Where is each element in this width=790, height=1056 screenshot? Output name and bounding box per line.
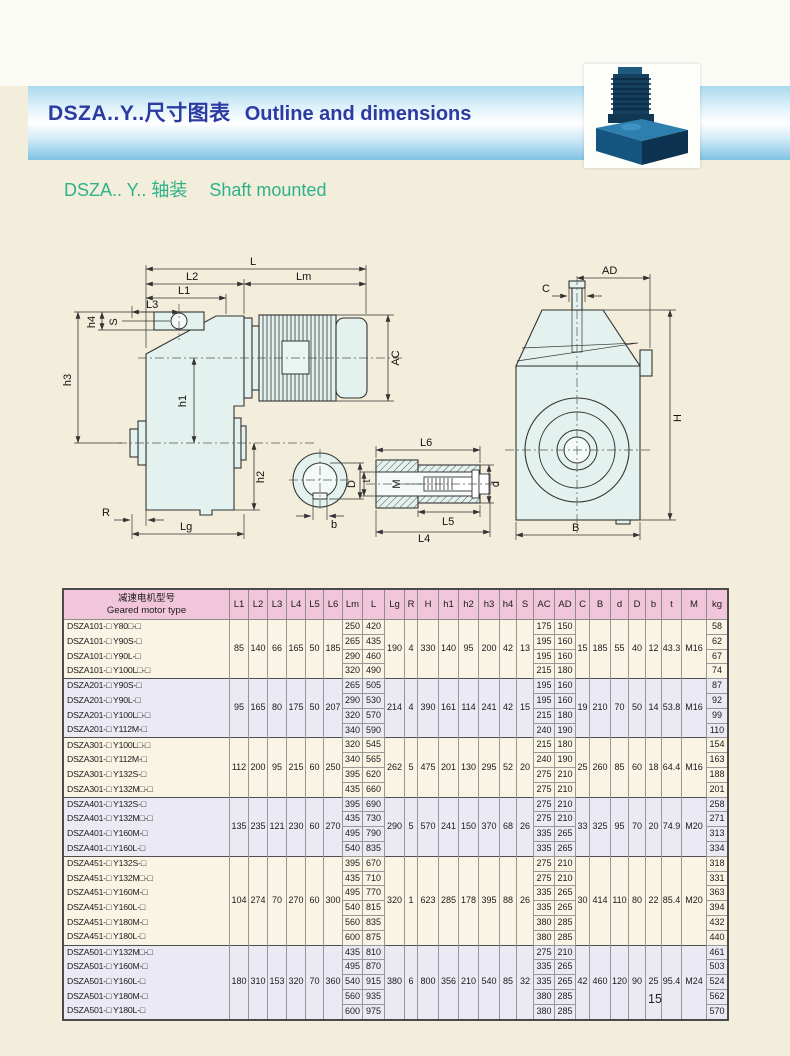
cell-AC: 380 — [534, 1004, 555, 1019]
cell-L2: 310 — [249, 945, 268, 1019]
cell-model: DSZA501-□ Y180M-□ — [63, 989, 230, 1004]
cell-AC: 335 — [534, 901, 555, 916]
cell-L5: 60 — [306, 738, 324, 797]
cell-AD: 210 — [555, 945, 576, 960]
header-col-kg: kg — [707, 589, 729, 620]
cell-AC: 215 — [534, 738, 555, 753]
dim-B: B — [572, 522, 579, 534]
cell-Lm: 495 — [343, 886, 363, 901]
header-col-B: B — [590, 589, 611, 620]
cell-kg: 318 — [707, 856, 729, 871]
cell-h1: 201 — [439, 738, 459, 797]
cell-H: 390 — [418, 679, 439, 738]
cell-L: 490 — [363, 664, 385, 679]
cell-M: M16 — [682, 679, 707, 738]
catalog-page: { "page": { "page_number": "15" }, "head… — [0, 0, 790, 1056]
cell-model: DSZA501-□ Y160M-□ — [63, 960, 230, 975]
cell-AC: 275 — [534, 782, 555, 797]
dim-h2: h2 — [255, 471, 267, 483]
side-view: L L2 Lm L1 L3 h3 h4 S h1 h2 AC R Lg — [62, 256, 403, 539]
cell-L1: 95 — [230, 679, 249, 738]
header-col-h4: h4 — [500, 589, 517, 620]
cell-h3: 540 — [479, 945, 500, 1019]
cell-h4: 68 — [500, 797, 517, 856]
cell-R: 1 — [405, 856, 418, 945]
header-col-L5: L5 — [306, 589, 324, 620]
cell-Lm: 435 — [343, 945, 363, 960]
cell-AC: 380 — [534, 915, 555, 930]
cell-AD: 265 — [555, 975, 576, 990]
cell-kg: 334 — [707, 841, 729, 856]
cell-b: 25 — [646, 945, 662, 1019]
cell-Lm: 290 — [343, 693, 363, 708]
cell-L4: 230 — [287, 797, 306, 856]
header-col-L6: L6 — [324, 589, 343, 620]
dim-C: C — [542, 283, 550, 295]
cell-h3: 395 — [479, 856, 500, 945]
header-col-L1: L1 — [230, 589, 249, 620]
cell-L1: 112 — [230, 738, 249, 797]
cell-L3: 70 — [268, 856, 287, 945]
header-col-C: C — [576, 589, 590, 620]
dim-H: H — [672, 414, 684, 422]
cell-Lg: 214 — [385, 679, 405, 738]
section-subtitle-en: Shaft mounted — [209, 180, 326, 200]
cell-kg: 58 — [707, 620, 729, 635]
cell-B: 414 — [590, 856, 611, 945]
cell-h4: 85 — [500, 945, 517, 1019]
cell-Lm: 395 — [343, 767, 363, 782]
cell-t: 95.4 — [662, 945, 682, 1019]
dim-L3: L3 — [146, 299, 158, 311]
cell-model: DSZA451-□ Y180M-□ — [63, 915, 230, 930]
cell-kg: 99 — [707, 708, 729, 723]
cell-model: DSZA401-□ Y160L-□ — [63, 841, 230, 856]
cell-kg: 271 — [707, 812, 729, 827]
cell-h2: 178 — [459, 856, 479, 945]
cell-AC: 195 — [534, 649, 555, 664]
page-title-zh: DSZA..Y..尺寸图表 — [48, 102, 231, 125]
cell-L6: 270 — [324, 797, 343, 856]
cell-h2: 150 — [459, 797, 479, 856]
cell-L2: 274 — [249, 856, 268, 945]
cell-t: 43.3 — [662, 620, 682, 679]
dim-L4: L4 — [418, 533, 430, 545]
cell-model: DSZA201-□ Y112M-□ — [63, 723, 230, 738]
dim-d: d — [490, 481, 502, 487]
cell-kg: 440 — [707, 930, 729, 945]
cell-L: 870 — [363, 960, 385, 975]
cell-d: 85 — [611, 738, 629, 797]
cell-model: DSZA501-□ Y132M□-□ — [63, 945, 230, 960]
cell-kg: 258 — [707, 797, 729, 812]
cell-kg: 154 — [707, 738, 729, 753]
cell-AC: 275 — [534, 797, 555, 812]
cell-L2: 200 — [249, 738, 268, 797]
cell-L: 810 — [363, 945, 385, 960]
cell-AD: 160 — [555, 649, 576, 664]
cell-Lm: 290 — [343, 649, 363, 664]
cell-L: 530 — [363, 693, 385, 708]
cell-L5: 70 — [306, 945, 324, 1019]
cell-Lm: 320 — [343, 664, 363, 679]
cell-h1: 356 — [439, 945, 459, 1019]
cell-AC: 195 — [534, 634, 555, 649]
cell-AC: 195 — [534, 679, 555, 694]
dim-L6: L6 — [420, 437, 432, 449]
dim-Lg: Lg — [180, 521, 192, 533]
cell-AC: 175 — [534, 620, 555, 635]
header-col-M: M — [682, 589, 707, 620]
cell-S: 26 — [517, 856, 534, 945]
cell-L5: 50 — [306, 679, 324, 738]
cell-t: 74.9 — [662, 797, 682, 856]
cell-AD: 190 — [555, 753, 576, 768]
cell-kg: 562 — [707, 989, 729, 1004]
cell-kg: 363 — [707, 886, 729, 901]
cell-D: 90 — [629, 945, 646, 1019]
header-col-L3: L3 — [268, 589, 287, 620]
cell-B: 460 — [590, 945, 611, 1019]
cell-L3: 80 — [268, 679, 287, 738]
cell-Lm: 320 — [343, 708, 363, 723]
cell-kg: 110 — [707, 723, 729, 738]
cell-C: 33 — [576, 797, 590, 856]
cell-L5: 60 — [306, 856, 324, 945]
cell-S: 26 — [517, 797, 534, 856]
header-col-D: D — [629, 589, 646, 620]
table-body: DSZA101-□ Y80□-□851406616550185250420190… — [63, 620, 728, 1020]
cell-Lm: 495 — [343, 827, 363, 842]
cell-AC: 215 — [534, 664, 555, 679]
cell-L5: 60 — [306, 797, 324, 856]
cell-AC: 275 — [534, 871, 555, 886]
cell-H: 570 — [418, 797, 439, 856]
cell-h4: 42 — [500, 679, 517, 738]
header-model-en: Geared motor type — [64, 605, 229, 617]
table-row: DSZA101-□ Y80□-□851406616550185250420190… — [63, 620, 728, 635]
cell-kg: 394 — [707, 901, 729, 916]
cell-model: DSZA101-□ Y90L-□ — [63, 649, 230, 664]
cell-L4: 175 — [287, 679, 306, 738]
cell-L: 730 — [363, 812, 385, 827]
header-col-L: L — [363, 589, 385, 620]
cell-Lm: 600 — [343, 1004, 363, 1019]
cell-L2: 235 — [249, 797, 268, 856]
cell-Lm: 435 — [343, 782, 363, 797]
cell-L: 835 — [363, 841, 385, 856]
cell-L: 435 — [363, 634, 385, 649]
header-col-AC: AC — [534, 589, 555, 620]
cell-kg: 524 — [707, 975, 729, 990]
cell-L1: 85 — [230, 620, 249, 679]
cell-S: 20 — [517, 738, 534, 797]
cell-L6: 185 — [324, 620, 343, 679]
cell-Lm: 495 — [343, 960, 363, 975]
cell-kg: 461 — [707, 945, 729, 960]
cell-AD: 160 — [555, 693, 576, 708]
cell-Lm: 540 — [343, 901, 363, 916]
dim-L: L — [250, 256, 256, 268]
cell-h2: 130 — [459, 738, 479, 797]
header-col-L2: L2 — [249, 589, 268, 620]
cell-L: 505 — [363, 679, 385, 694]
cell-Lg: 190 — [385, 620, 405, 679]
cell-D: 50 — [629, 679, 646, 738]
cell-model: DSZA101-□ Y100L□-□ — [63, 664, 230, 679]
cell-AD: 210 — [555, 797, 576, 812]
cell-h3: 370 — [479, 797, 500, 856]
cell-h3: 295 — [479, 738, 500, 797]
cell-L: 660 — [363, 782, 385, 797]
cell-model: DSZA451-□ Y160M-□ — [63, 886, 230, 901]
cell-model: DSZA451-□ Y160L-□ — [63, 901, 230, 916]
cell-h4: 52 — [500, 738, 517, 797]
cell-kg: 201 — [707, 782, 729, 797]
cell-h3: 200 — [479, 620, 500, 679]
page-number: 15 — [648, 992, 662, 1006]
cell-L: 620 — [363, 767, 385, 782]
header-col-R: R — [405, 589, 418, 620]
shaft-detail-view: t b M D d L6 L5 L4 — [289, 437, 502, 545]
cell-kg: 432 — [707, 915, 729, 930]
cell-L: 710 — [363, 871, 385, 886]
cell-AC: 335 — [534, 960, 555, 975]
cell-model: DSZA101-□ Y90S-□ — [63, 634, 230, 649]
cell-b: 20 — [646, 797, 662, 856]
cell-model: DSZA201-□ Y90S-□ — [63, 679, 230, 694]
cell-Lm: 435 — [343, 871, 363, 886]
cell-AC: 380 — [534, 930, 555, 945]
cell-L: 815 — [363, 901, 385, 916]
cell-AD: 190 — [555, 723, 576, 738]
cell-M: M16 — [682, 620, 707, 679]
cell-L2: 165 — [249, 679, 268, 738]
cell-AD: 265 — [555, 886, 576, 901]
dim-L5: L5 — [442, 516, 454, 528]
cell-AC: 275 — [534, 856, 555, 871]
dim-AD: AD — [602, 265, 617, 277]
cell-L: 690 — [363, 797, 385, 812]
outline-drawing: L L2 Lm L1 L3 h3 h4 S h1 h2 AC R Lg — [58, 248, 728, 548]
cell-b: 22 — [646, 856, 662, 945]
cell-AD: 180 — [555, 708, 576, 723]
cell-L1: 180 — [230, 945, 249, 1019]
cell-d: 70 — [611, 679, 629, 738]
cell-AD: 285 — [555, 930, 576, 945]
cell-H: 623 — [418, 856, 439, 945]
cell-R: 5 — [405, 738, 418, 797]
cell-B: 325 — [590, 797, 611, 856]
dim-t: t — [361, 479, 373, 482]
cell-h2: 114 — [459, 679, 479, 738]
cell-L6: 207 — [324, 679, 343, 738]
section-subtitle: DSZA.. Y.. 轴装Shaft mounted — [64, 176, 326, 202]
cell-Lm: 435 — [343, 812, 363, 827]
cell-model: DSZA101-□ Y80□-□ — [63, 620, 230, 635]
cell-model: DSZA301-□ Y132S-□ — [63, 767, 230, 782]
dim-h4: h4 — [86, 316, 98, 328]
cell-H: 475 — [418, 738, 439, 797]
cell-kg: 87 — [707, 679, 729, 694]
cell-kg: 74 — [707, 664, 729, 679]
cell-Lm: 395 — [343, 856, 363, 871]
cell-Lm: 560 — [343, 915, 363, 930]
cell-Lm: 340 — [343, 753, 363, 768]
table-row: DSZA201-□ Y90S-□951658017550207265505214… — [63, 679, 728, 694]
cell-AC: 335 — [534, 975, 555, 990]
cell-AD: 285 — [555, 989, 576, 1004]
cell-d: 55 — [611, 620, 629, 679]
product-photo — [584, 64, 700, 168]
cell-Lm: 600 — [343, 930, 363, 945]
cell-kg: 92 — [707, 693, 729, 708]
cell-b: 14 — [646, 679, 662, 738]
dim-h1: h1 — [177, 395, 189, 407]
cell-L: 570 — [363, 708, 385, 723]
header-col-b: b — [646, 589, 662, 620]
cell-AD: 285 — [555, 1004, 576, 1019]
cell-L: 790 — [363, 827, 385, 842]
cell-R: 4 — [405, 679, 418, 738]
page-title-en: Outline and dimensions — [245, 103, 472, 125]
cell-model: DSZA401-□ Y132S-□ — [63, 797, 230, 812]
cell-b: 18 — [646, 738, 662, 797]
cell-model: DSZA301-□ Y132M□-□ — [63, 782, 230, 797]
cell-h1: 285 — [439, 856, 459, 945]
cell-L2: 140 — [249, 620, 268, 679]
cell-L: 975 — [363, 1004, 385, 1019]
cell-h1: 241 — [439, 797, 459, 856]
cell-Lm: 540 — [343, 975, 363, 990]
cell-d: 110 — [611, 856, 629, 945]
cell-model: DSZA501-□ Y160L-□ — [63, 975, 230, 990]
cell-L: 460 — [363, 649, 385, 664]
cell-model: DSZA401-□ Y160M-□ — [63, 827, 230, 842]
cell-d: 95 — [611, 797, 629, 856]
cell-Lg: 262 — [385, 738, 405, 797]
cell-AD: 210 — [555, 856, 576, 871]
cell-model: DSZA301-□ Y112M-□ — [63, 753, 230, 768]
cell-L3: 66 — [268, 620, 287, 679]
header-col-S: S — [517, 589, 534, 620]
dim-S: S — [108, 318, 120, 325]
cell-B: 185 — [590, 620, 611, 679]
cell-L5: 50 — [306, 620, 324, 679]
header-col-d: d — [611, 589, 629, 620]
table-row: DSZA451-□ Y132S-□10427470270603003956703… — [63, 856, 728, 871]
cell-D: 60 — [629, 738, 646, 797]
cell-C: 30 — [576, 856, 590, 945]
cell-L: 420 — [363, 620, 385, 635]
cell-AD: 285 — [555, 915, 576, 930]
header-col-H: H — [418, 589, 439, 620]
table-header: 减速电机型号 Geared motor type L1L2L3L4L5L6LmL… — [63, 589, 728, 620]
cell-kg: 503 — [707, 960, 729, 975]
dim-D: D — [346, 480, 358, 488]
cell-kg: 163 — [707, 753, 729, 768]
header-col-Lg: Lg — [385, 589, 405, 620]
cell-L: 670 — [363, 856, 385, 871]
cell-AC: 240 — [534, 753, 555, 768]
table-row: DSZA301-□ Y100L□-□1122009521560250320545… — [63, 738, 728, 753]
cell-L: 915 — [363, 975, 385, 990]
cell-H: 800 — [418, 945, 439, 1019]
cell-Lm: 250 — [343, 620, 363, 635]
cell-AD: 210 — [555, 782, 576, 797]
dimension-table: 减速电机型号 Geared motor type L1L2L3L4L5L6LmL… — [62, 588, 729, 1021]
dim-M: M — [391, 479, 403, 488]
dim-L1: L1 — [178, 285, 190, 297]
cell-Lm: 265 — [343, 679, 363, 694]
cell-L6: 300 — [324, 856, 343, 945]
header-model: 减速电机型号 Geared motor type — [63, 589, 230, 620]
cell-C: 19 — [576, 679, 590, 738]
cell-AC: 335 — [534, 886, 555, 901]
cell-L3: 121 — [268, 797, 287, 856]
front-view: AD C H B — [505, 265, 684, 540]
dim-b: b — [331, 519, 337, 531]
cell-Lm: 340 — [343, 723, 363, 738]
cell-Lg: 380 — [385, 945, 405, 1019]
cell-M: M24 — [682, 945, 707, 1019]
header-col-L4: L4 — [287, 589, 306, 620]
dim-AC: AC — [390, 350, 402, 365]
cell-AD: 265 — [555, 901, 576, 916]
cell-t: 64.4 — [662, 738, 682, 797]
cell-L: 770 — [363, 886, 385, 901]
cell-L6: 250 — [324, 738, 343, 797]
cell-S: 32 — [517, 945, 534, 1019]
cell-model: DSZA401-□ Y132M□-□ — [63, 812, 230, 827]
cell-Lm: 265 — [343, 634, 363, 649]
cell-AC: 380 — [534, 989, 555, 1004]
cell-C: 42 — [576, 945, 590, 1019]
cell-h2: 95 — [459, 620, 479, 679]
header-model-zh: 减速电机型号 — [64, 593, 229, 605]
cell-Lm: 395 — [343, 797, 363, 812]
cell-kg: 62 — [707, 634, 729, 649]
table-row: DSZA501-□ Y132M□-□1803101533207036043581… — [63, 945, 728, 960]
section-subtitle-zh: DSZA.. Y.. 轴装 — [64, 180, 187, 200]
cell-model: DSZA301-□ Y100L□-□ — [63, 738, 230, 753]
cell-model: DSZA501-□ Y180L-□ — [63, 1004, 230, 1019]
cell-B: 210 — [590, 679, 611, 738]
cell-AC: 240 — [534, 723, 555, 738]
header-col-h1: h1 — [439, 589, 459, 620]
cell-B: 260 — [590, 738, 611, 797]
header-col-h3: h3 — [479, 589, 500, 620]
cell-L: 875 — [363, 930, 385, 945]
cell-L: 565 — [363, 753, 385, 768]
cell-L1: 135 — [230, 797, 249, 856]
cell-L3: 153 — [268, 945, 287, 1019]
table-row: DSZA401-□ Y132S-□13523512123060270395690… — [63, 797, 728, 812]
cell-Lm: 320 — [343, 738, 363, 753]
cell-L4: 320 — [287, 945, 306, 1019]
cell-kg: 188 — [707, 767, 729, 782]
cell-L: 545 — [363, 738, 385, 753]
cell-t: 85.4 — [662, 856, 682, 945]
cell-AC: 275 — [534, 945, 555, 960]
cell-h4: 88 — [500, 856, 517, 945]
cell-model: DSZA201-□ Y90L-□ — [63, 693, 230, 708]
cell-AC: 275 — [534, 767, 555, 782]
cell-AD: 150 — [555, 620, 576, 635]
cell-AC: 335 — [534, 827, 555, 842]
cell-d: 120 — [611, 945, 629, 1019]
cell-AD: 210 — [555, 812, 576, 827]
